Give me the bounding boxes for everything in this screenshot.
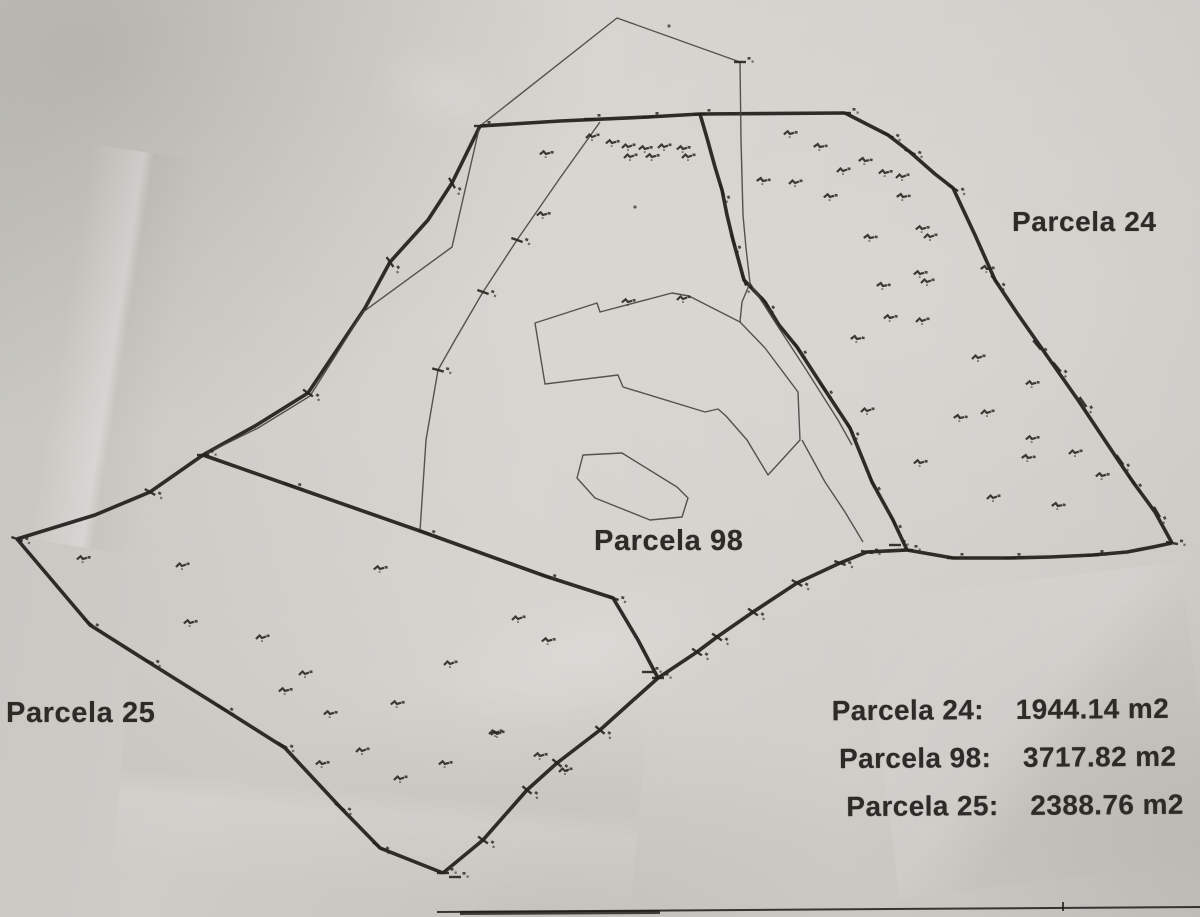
parcel24-east-boundary <box>845 113 1172 543</box>
point-marker <box>1096 472 1110 481</box>
point-marker <box>863 233 878 243</box>
parcel-25-label: Parcela 25 <box>6 697 156 730</box>
point-marker <box>981 410 995 418</box>
scanned-parcel-map-sheet: Parcela 24 Parcela 98 Parcela 25 Parcela… <box>0 0 1200 917</box>
point-marker <box>921 279 935 287</box>
survey-tick <box>734 57 754 63</box>
interior-path-98 <box>420 122 600 531</box>
point-marker <box>1021 453 1036 463</box>
point-marker <box>639 145 653 154</box>
point-marker <box>784 130 798 139</box>
point-marker <box>824 193 838 202</box>
point-marker <box>537 211 551 220</box>
survey-tick <box>607 591 627 603</box>
enclosure-corner-path <box>802 440 863 542</box>
point-marker <box>444 661 458 669</box>
point-marker <box>316 760 330 769</box>
point-marker <box>850 334 865 344</box>
point-marker <box>658 144 672 152</box>
parcel-24-label: Parcela 24 <box>1012 206 1157 238</box>
point-marker <box>391 700 405 709</box>
point-marker <box>876 281 891 291</box>
survey-tick <box>449 872 469 878</box>
point-markers <box>77 130 1110 783</box>
parcel-98-label: Parcela 98 <box>594 525 744 558</box>
point-marker <box>540 150 554 159</box>
point-marker <box>279 687 293 696</box>
point-marker <box>542 637 556 646</box>
point-marker <box>756 176 771 186</box>
point-marker <box>299 671 313 679</box>
area-row-value: 2388.76 m2 <box>1014 789 1184 821</box>
area-row-parcel-25: Parcela 25:2388.76 m2 <box>846 781 1184 831</box>
area-summary-table: Parcela 24:1944.14 m2 Parcela 98:3717.82… <box>832 685 1184 831</box>
point-marker <box>1026 435 1040 444</box>
point-marker <box>914 459 928 468</box>
point-marker <box>677 296 691 304</box>
point-marker <box>624 154 638 162</box>
point-marker <box>512 616 526 624</box>
parcel24-south-boundary <box>907 543 1172 558</box>
survey-tick <box>432 364 453 375</box>
area-row-parcel-24: Parcela 24:1944.14 m2 <box>832 685 1184 735</box>
divider-side-path <box>750 283 852 445</box>
northwest-boundary <box>203 126 480 455</box>
area-row-value: 1944.14 m2 <box>1000 693 1170 725</box>
point-marker <box>884 314 898 323</box>
point-marker <box>77 555 91 564</box>
point-marker <box>813 142 828 152</box>
north-boundary <box>480 113 845 126</box>
small-enclosure-outline <box>577 453 688 520</box>
ink-dot <box>667 24 670 27</box>
survey-tick <box>839 108 859 114</box>
point-marker <box>324 710 338 719</box>
point-marker <box>858 156 873 166</box>
parcel25-west-boundary <box>17 455 203 539</box>
point-marker <box>677 145 691 154</box>
northwest-side-path <box>207 129 479 453</box>
parcel98-24-divider <box>700 114 907 550</box>
area-row-parcel-98: Parcela 98:3717.82 m2 <box>839 733 1184 783</box>
point-marker <box>953 413 968 423</box>
point-marker <box>896 192 911 202</box>
point-marker <box>374 565 388 574</box>
point-marker <box>559 768 573 776</box>
point-marker <box>987 495 1001 503</box>
point-marker <box>837 168 851 176</box>
point-marker <box>256 635 270 643</box>
area-row-label: Parcela 25: <box>846 782 1014 831</box>
point-marker <box>184 619 198 628</box>
point-marker <box>439 760 453 769</box>
point-marker <box>646 153 660 162</box>
point-marker <box>176 563 190 571</box>
point-marker <box>916 225 930 234</box>
point-marker <box>534 752 548 761</box>
point-marker <box>1026 380 1040 389</box>
survey-tick <box>373 838 392 854</box>
point-marker <box>1069 450 1083 458</box>
point-marker <box>914 270 928 279</box>
point-marker <box>789 180 803 188</box>
parcel25-98-divider <box>203 455 658 678</box>
point-marker <box>606 139 620 148</box>
parcel25-southeast-boundary <box>443 678 658 873</box>
point-marker <box>916 318 930 326</box>
area-row-label: Parcela 98: <box>839 734 1007 783</box>
ink-dot <box>633 205 636 208</box>
point-marker <box>972 355 986 363</box>
path-to-enclosure <box>740 283 750 322</box>
area-row-label: Parcela 24: <box>832 686 1000 735</box>
area-row-value: 3717.82 m2 <box>1007 741 1177 773</box>
point-marker <box>394 776 408 784</box>
point-marker <box>924 234 938 242</box>
parcel98-south-boundary <box>658 550 907 678</box>
point-marker <box>879 169 893 178</box>
point-marker <box>682 154 696 162</box>
point-marker <box>896 174 910 182</box>
point-marker <box>356 748 370 756</box>
point-marker <box>861 408 875 416</box>
sheet-frame-bottom-line-thick <box>460 912 660 913</box>
central-enclosure-outline <box>535 293 800 475</box>
point-marker <box>622 144 636 152</box>
point-marker <box>1051 501 1066 511</box>
survey-tick <box>539 569 559 581</box>
